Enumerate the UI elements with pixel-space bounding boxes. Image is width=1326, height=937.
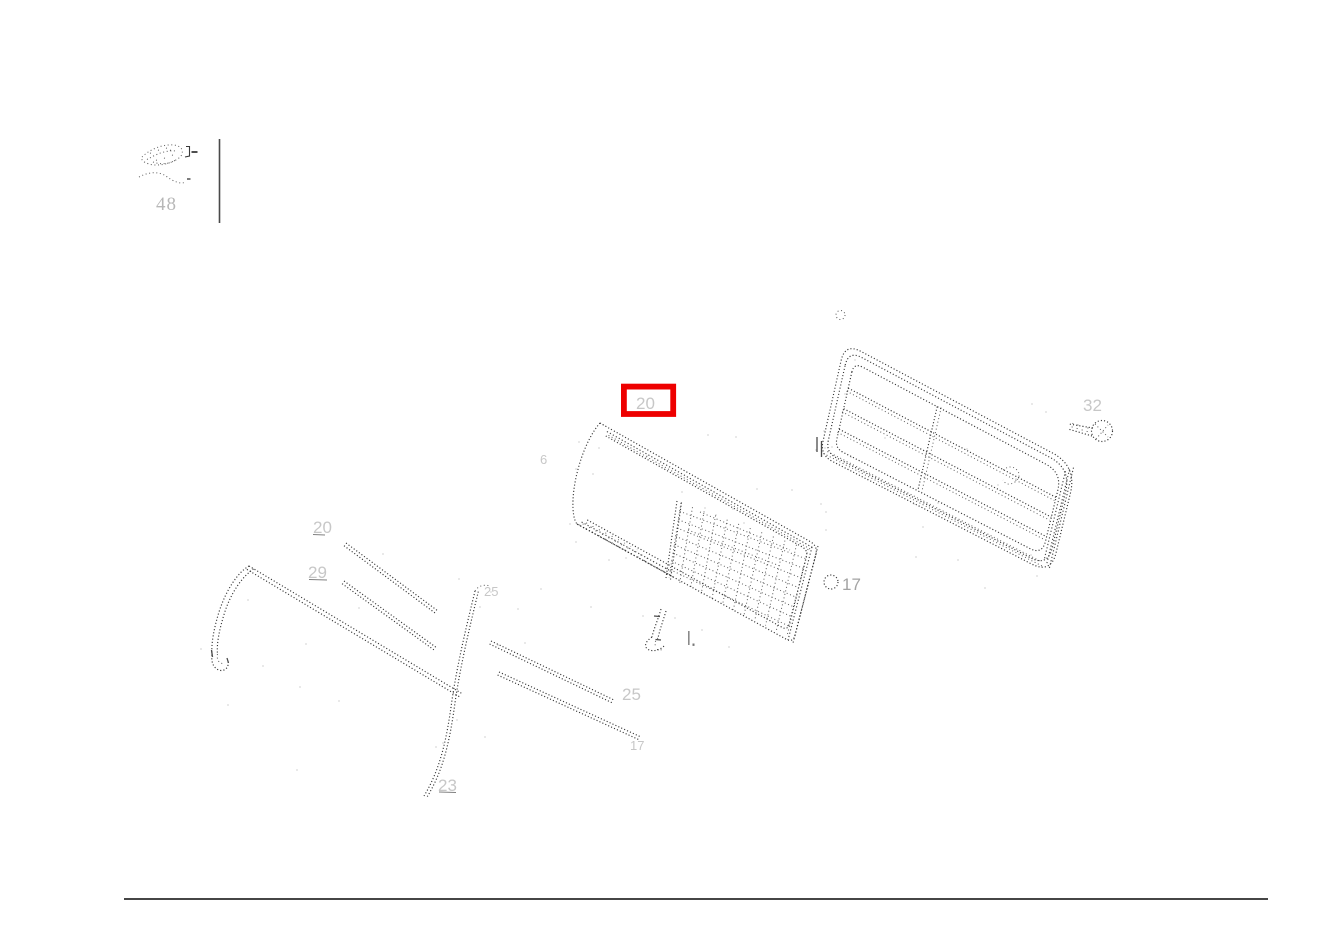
svg-text:6: 6 [540, 452, 547, 467]
svg-text:20: 20 [636, 394, 655, 413]
svg-text:17: 17 [630, 738, 644, 753]
svg-text:32: 32 [1083, 396, 1102, 415]
svg-text:48: 48 [156, 194, 177, 215]
svg-text:17: 17 [842, 575, 861, 594]
svg-text:25: 25 [622, 685, 641, 704]
